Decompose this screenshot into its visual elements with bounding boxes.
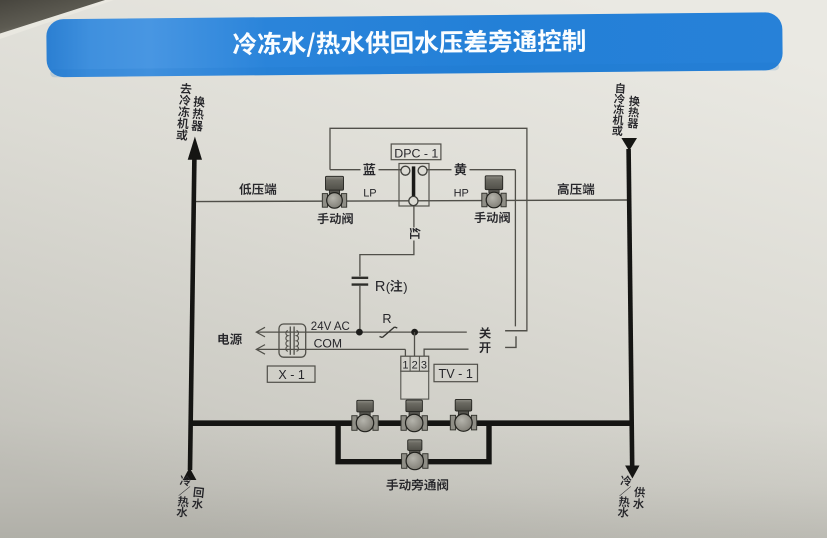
svg-text:24V AC: 24V AC <box>311 321 350 333</box>
svg-text:3: 3 <box>421 359 427 371</box>
svg-text:LP: LP <box>363 188 376 200</box>
svg-text:(: ( <box>386 280 391 295</box>
svg-text:TV - 1: TV - 1 <box>439 367 473 381</box>
svg-text:1: 1 <box>402 359 408 371</box>
svg-text:COM: COM <box>314 336 342 350</box>
svg-text:DPC - 1: DPC - 1 <box>394 147 438 161</box>
svg-text:2: 2 <box>412 359 418 371</box>
svg-text:HP: HP <box>454 188 469 200</box>
svg-text:): ) <box>403 280 407 295</box>
svg-text:X - 1: X - 1 <box>278 368 304 382</box>
svg-text:R: R <box>382 312 391 326</box>
svg-text:R: R <box>375 279 386 295</box>
